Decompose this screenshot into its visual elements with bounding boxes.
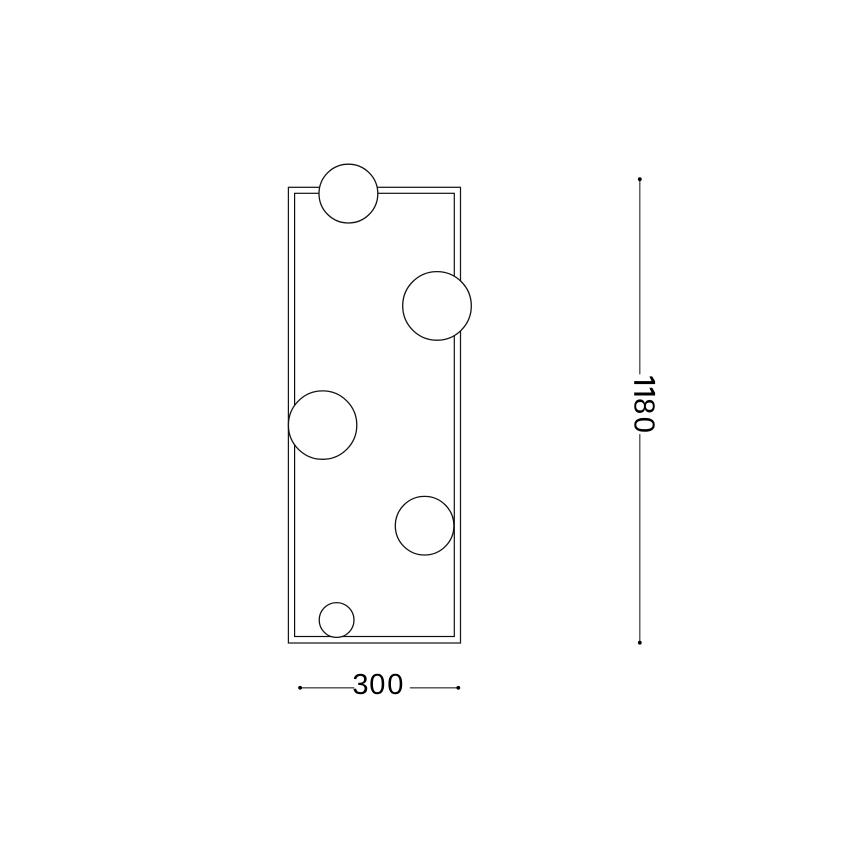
svg-text:8: 8 <box>627 398 659 414</box>
svg-text:3: 3 <box>352 669 368 701</box>
svg-text:0: 0 <box>627 417 659 433</box>
svg-text:0: 0 <box>387 669 403 701</box>
svg-text:0: 0 <box>369 669 385 701</box>
